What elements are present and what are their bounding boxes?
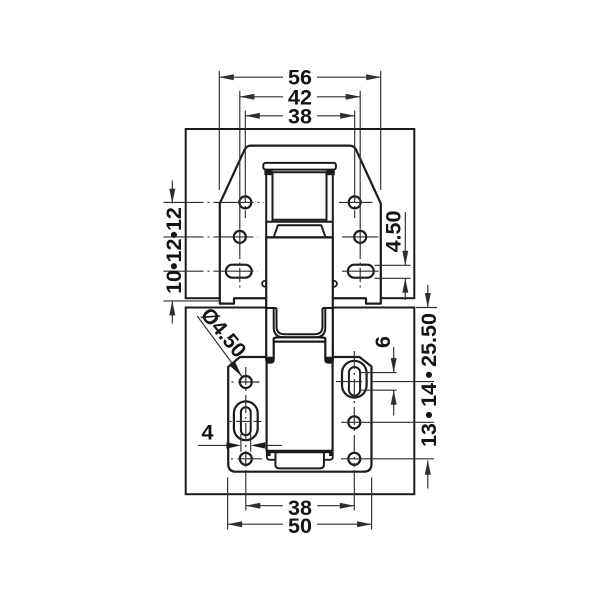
svg-text:50: 50 (288, 514, 312, 538)
svg-text:38: 38 (288, 104, 312, 128)
svg-text:4.50: 4.50 (381, 211, 405, 253)
svg-text:4: 4 (202, 421, 214, 445)
svg-text:6: 6 (371, 336, 395, 348)
svg-text:10•12•12: 10•12•12 (162, 207, 186, 294)
svg-text:13 • 14 • 25.50: 13 • 14 • 25.50 (417, 313, 441, 447)
